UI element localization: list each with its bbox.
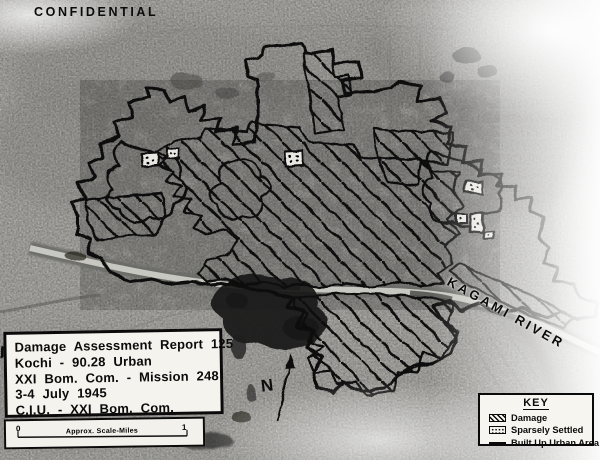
damage-hatch-swatch-icon: [489, 414, 506, 422]
north-label: N: [260, 375, 275, 396]
scale-bar: 0 1 Approx. Scale-Miles: [4, 417, 205, 450]
scale-line: [18, 435, 187, 438]
info-box: Damage Assessment Report 125 Kochi - 90.…: [3, 328, 223, 418]
built-up-line-swatch-icon: [489, 442, 506, 445]
damage-assessment-map: CONFIDENTIAL KAGAMI RIVER N Damage Asses…: [0, 0, 600, 460]
key-label-sparsely-settled: Sparsely Settled: [511, 425, 583, 435]
key-label-damage: Damage: [511, 413, 547, 423]
scale-end-label: 1: [182, 423, 187, 432]
key-box: KEY Damage Sparsely Settled Built Up Urb…: [478, 393, 594, 446]
scale-bar-graphic: 0 1 Approx. Scale-Miles: [6, 419, 202, 447]
key-label-built-up: Built Up Urban Area: [511, 438, 599, 448]
scale-caption: Approx. Scale-Miles: [66, 428, 138, 436]
sparsely-settled-swatch-icon: [489, 426, 506, 434]
key-row-sparsely-settled: Sparsely Settled: [480, 425, 592, 435]
classification-banner: CONFIDENTIAL: [34, 5, 158, 19]
key-row-damage: Damage: [480, 413, 592, 423]
key-title: KEY: [523, 397, 549, 410]
key-row-built-up: Built Up Urban Area: [480, 438, 592, 448]
